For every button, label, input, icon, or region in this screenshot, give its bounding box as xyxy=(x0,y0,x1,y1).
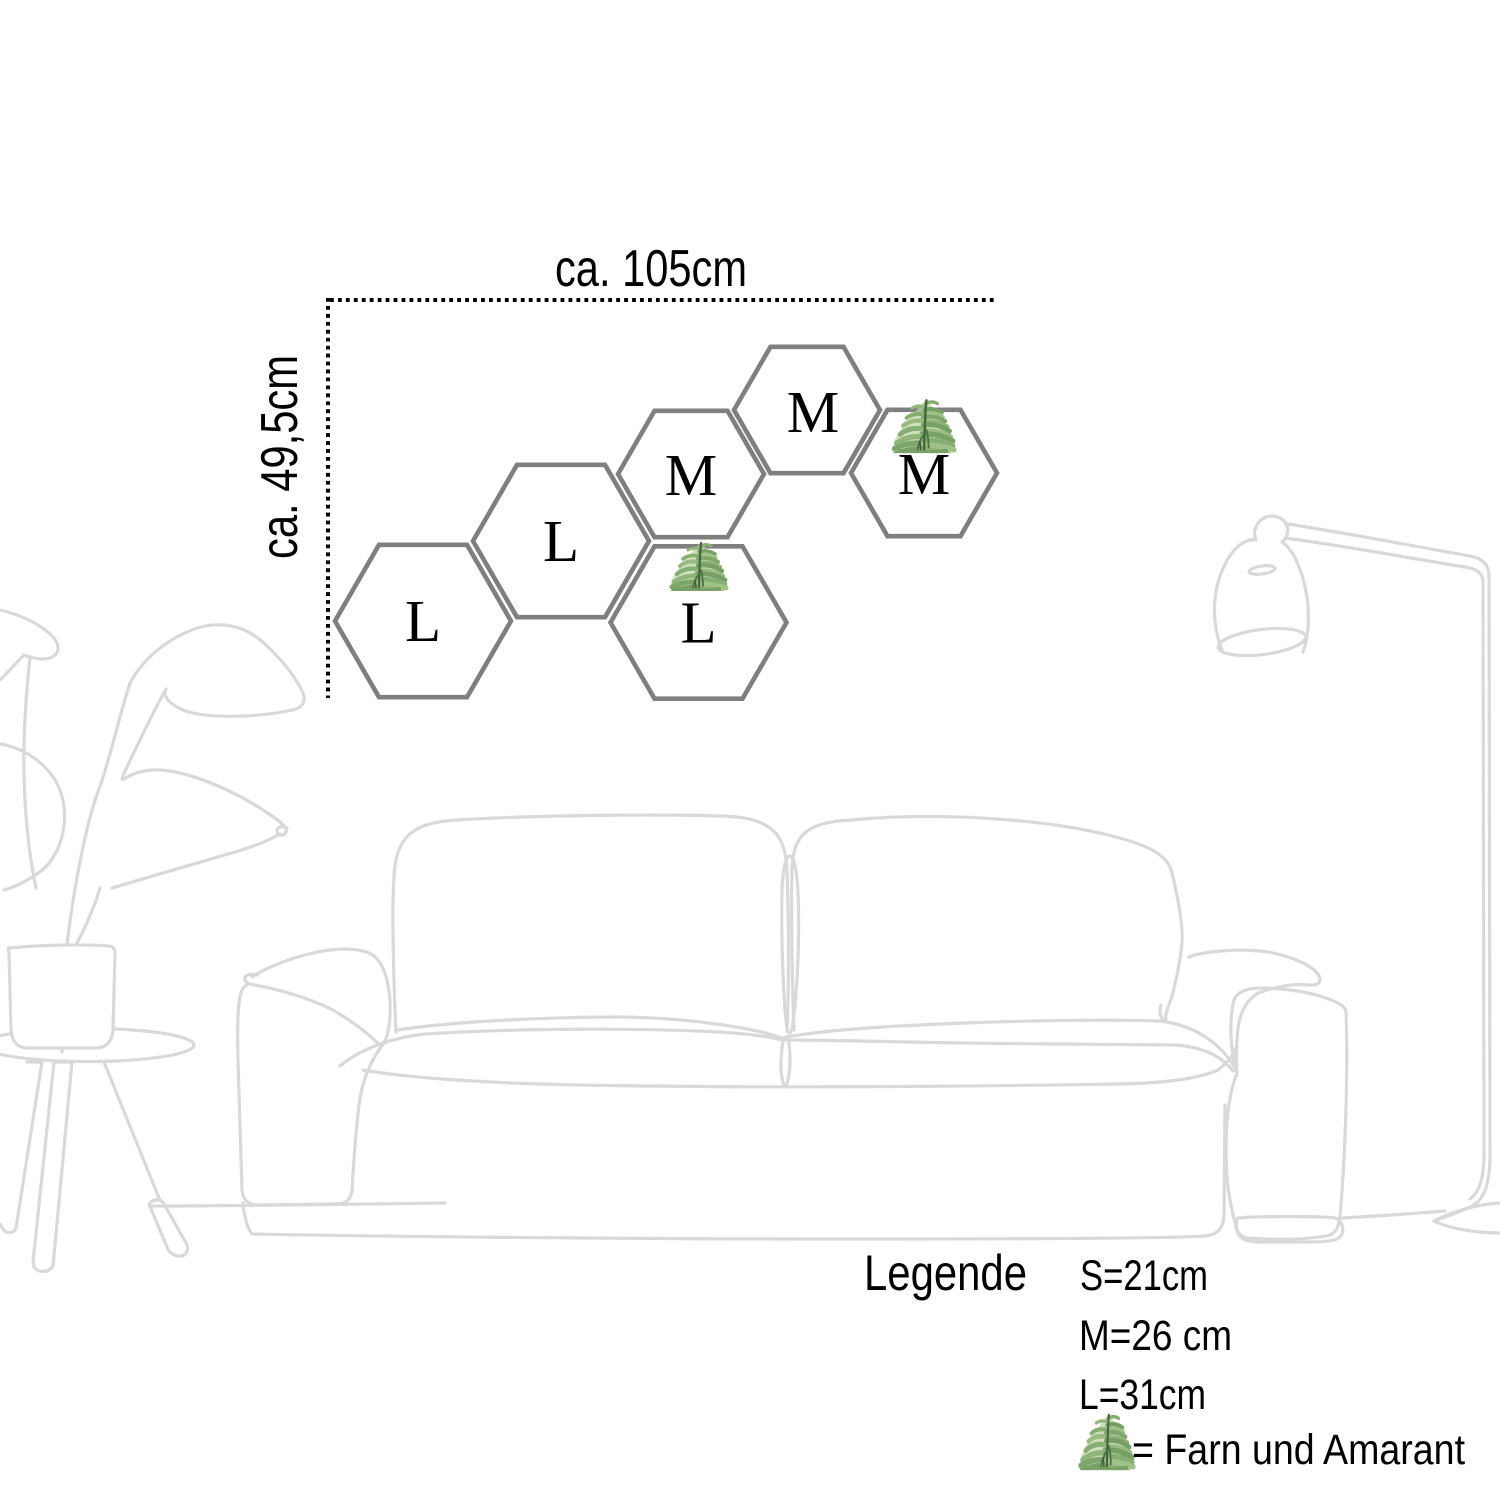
svg-text:= Farn und Amarant: = Farn und Amarant xyxy=(1132,1426,1465,1474)
svg-text:M=26 cm: M=26 cm xyxy=(1079,1312,1232,1360)
svg-text:L=31cm: L=31cm xyxy=(1079,1371,1206,1419)
svg-text:L: L xyxy=(405,588,441,654)
svg-text:L: L xyxy=(680,590,716,656)
svg-text:M: M xyxy=(787,379,839,445)
svg-text:Legende: Legende xyxy=(864,1245,1027,1301)
svg-text:ca. 105cm: ca. 105cm xyxy=(555,240,747,298)
svg-text:S=21cm: S=21cm xyxy=(1080,1252,1208,1300)
svg-text:M: M xyxy=(665,442,717,508)
svg-text:ca. 49,5cm: ca. 49,5cm xyxy=(251,355,309,559)
svg-text:L: L xyxy=(543,508,579,574)
